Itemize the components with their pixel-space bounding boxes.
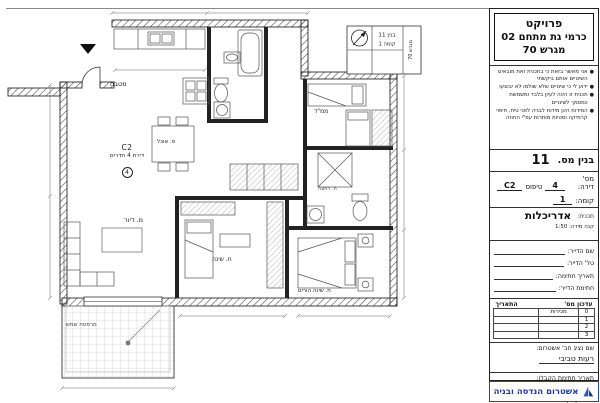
room-label-living: מ. דיור: [124, 216, 143, 224]
note-text: אני מאשר בזאת כי בתכנית זאת מובאים השינו…: [494, 69, 588, 83]
apartment-row: מס' דירה: 4 טיפוס C2 קומה: 1: [490, 171, 598, 207]
company-logo-text: אשטרום הנדסה ובניה: [494, 387, 579, 397]
revision-row: 0 מכירות: [494, 309, 595, 317]
room-label-balcony: מרפסת שמש: [66, 322, 97, 328]
field-label: חתימת הדייר:: [559, 285, 595, 292]
entry-door: [82, 67, 100, 85]
apartment-number-badge: 4: [122, 167, 133, 178]
fill-in-line: [494, 247, 565, 255]
project-header: פרויקט כרמי גת מתחם 02 מגרש 70: [494, 13, 594, 61]
room-label-master-bedroom: ח. שינה הורים: [298, 288, 331, 294]
apartment-type-value: C2: [497, 181, 522, 191]
revision-no-header: עדכון מס': [539, 301, 595, 309]
revision-row: 1: [494, 316, 595, 324]
revision-desc: [539, 331, 579, 339]
revision-desc: מכירות: [539, 309, 579, 317]
revision-desc: [539, 324, 579, 332]
note-item: ● המידות הינן מידות לבניה לפני טיח, חיפו…: [494, 108, 594, 122]
master-bed: [298, 234, 373, 291]
revisions-table: עדכון מס' התאריך 0 מכירות 1 2: [493, 301, 595, 339]
fill-in-line: [494, 259, 564, 267]
field-label: טל' הדייר:: [567, 260, 594, 267]
room-label-bedroom: ח. שינה: [212, 256, 232, 263]
rep-label: שם נציג חב' אשטרום:: [494, 345, 594, 352]
revision-row: 3: [494, 331, 595, 339]
revisions-section: עדכון מס' התאריך 0 מכירות 1 2: [490, 298, 598, 342]
bullet-icon: ●: [590, 92, 594, 106]
apartment-label: מס' דירה:: [568, 175, 594, 191]
bedroom-furniture: [181, 202, 283, 288]
revision-desc: [539, 316, 579, 324]
room-label-mamad: ממ"ד: [314, 108, 328, 115]
apartment-type-block: C2 דירת 4 חדרים 4: [96, 143, 158, 178]
notes-section: ● אני מאשר בזאת כי בתכנית זאת מובאים השי…: [490, 65, 598, 149]
title-block: פרויקט כרמי גת מתחם 02 מגרש 70 ● אני מאש…: [489, 8, 599, 381]
note-text: המידות הינן מידות לבניה לפני טיח, חיפוי …: [494, 108, 588, 122]
revision-date: [494, 309, 539, 317]
mamad-beds: [308, 84, 392, 146]
note-item: ● תכנית זו הינה לעיון בלבד ומשמשת כמסמך …: [494, 92, 594, 106]
field-label: תאריך חתימה:: [556, 273, 594, 280]
company-rep-section: שם נציג חב' אשטרום: רעות טביבי: [490, 342, 598, 372]
apartment-type-field-label: טיפוס: [525, 183, 542, 191]
note-item: ● אני מאשר בזאת כי בתכנית זאת מובאים השי…: [494, 69, 594, 83]
entry-arrow-icon: [80, 44, 96, 54]
field-label: שם הדייר:: [568, 248, 594, 255]
revision-no: 2: [579, 324, 595, 332]
revision-no: 0: [579, 309, 595, 317]
field-row: חתימת הדייר:: [494, 284, 594, 292]
building-number: 11: [532, 153, 550, 168]
building-number-row: בנין מס. 11: [490, 149, 598, 171]
stove-icon: [183, 78, 209, 104]
floor-label: קומה:: [575, 197, 594, 205]
room-label-bath: ח. רחצה: [318, 186, 337, 192]
keyplan-building-label: בנין 11: [378, 33, 395, 39]
room-label-dining: פ. אוכל: [157, 139, 175, 145]
bullet-icon: ●: [590, 84, 594, 91]
drawing-sheet: בנין 11 קומה 1 מגרש 70: [0, 0, 600, 403]
revision-date: [494, 324, 539, 332]
project-label: פרויקט: [497, 17, 591, 30]
revision-row: 2: [494, 324, 595, 332]
floor-plan-area: בנין 11 קומה 1 מגרש 70: [0, 0, 487, 403]
bullet-icon: ●: [590, 69, 594, 83]
revision-no: 3: [579, 331, 595, 339]
floor-plan-drawing: בנין 11 קומה 1 מגרש 70: [0, 0, 487, 403]
company-logo: אשטרום הנדסה ובניה: [489, 381, 599, 402]
apartment-type-label: C2: [96, 143, 158, 152]
revision-no: 1: [579, 316, 595, 324]
sofa: [64, 222, 114, 286]
tenant-fields: שם הדייר: טל' הדייר: תאריך חתימה: חתימת …: [490, 240, 598, 298]
revision-date-header: התאריך: [494, 301, 539, 309]
coffee-table: [102, 228, 142, 252]
field-row: שם הדייר:: [494, 247, 594, 255]
bullet-icon: ●: [590, 108, 594, 122]
revision-date: [494, 316, 539, 324]
ashtrom-sail-icon: [581, 385, 594, 398]
corridor-wardrobe: [230, 164, 298, 190]
shower-and-toilet: [307, 153, 368, 223]
building-label: בנין מס.: [558, 155, 594, 166]
scale-value: 1:50: [555, 224, 567, 230]
bathroom-fixtures: [214, 30, 262, 118]
balcony: [62, 297, 174, 378]
fill-in-line: [494, 284, 556, 292]
revisions-header-row: עדכון מס' התאריך: [494, 301, 595, 309]
field-row: תאריך חתימה:: [494, 272, 594, 280]
note-text: תכנית זו הינה לעיון בלבד ומשמשת כמסמך לש…: [494, 92, 588, 106]
note-text: ידוע לי כי שינויים שלא שולמו לא יבוצעו: [499, 84, 587, 91]
plan-type-value: אדריכלות: [525, 210, 571, 222]
project-plot: מגרש 70: [497, 45, 591, 56]
keyplan-floor-label: קומה 1: [379, 42, 396, 48]
fill-in-line: [494, 272, 553, 280]
kitchen-counter: [114, 29, 205, 49]
apartment-value: 4: [545, 181, 565, 191]
rep-name: רעות טביבי: [539, 354, 594, 364]
field-row: טל' הדייר:: [494, 259, 594, 267]
room-label-kitchen: מטבח: [110, 80, 127, 88]
apartment-desc-label: דירת 4 חדרים: [96, 153, 158, 159]
key-plan: בנין 11 קומה 1 מגרש 70: [347, 26, 421, 74]
note-item: ● ידוע לי כי שינויים שלא שולמו לא יבוצעו: [494, 84, 594, 91]
floor-value: 1: [553, 195, 573, 205]
plan-type-label: תכנית:: [577, 213, 594, 220]
project-name: כרמי גת מתחם 02: [497, 32, 591, 43]
revision-date: [494, 331, 539, 339]
scale-label: קנה מידה:: [569, 224, 594, 230]
keyplan-plot-label: מגרש 70: [408, 40, 414, 60]
exterior-walls: [8, 20, 397, 306]
plan-type-row: תכנית: אדריכלות קנה מידה: 1:50: [490, 207, 598, 240]
